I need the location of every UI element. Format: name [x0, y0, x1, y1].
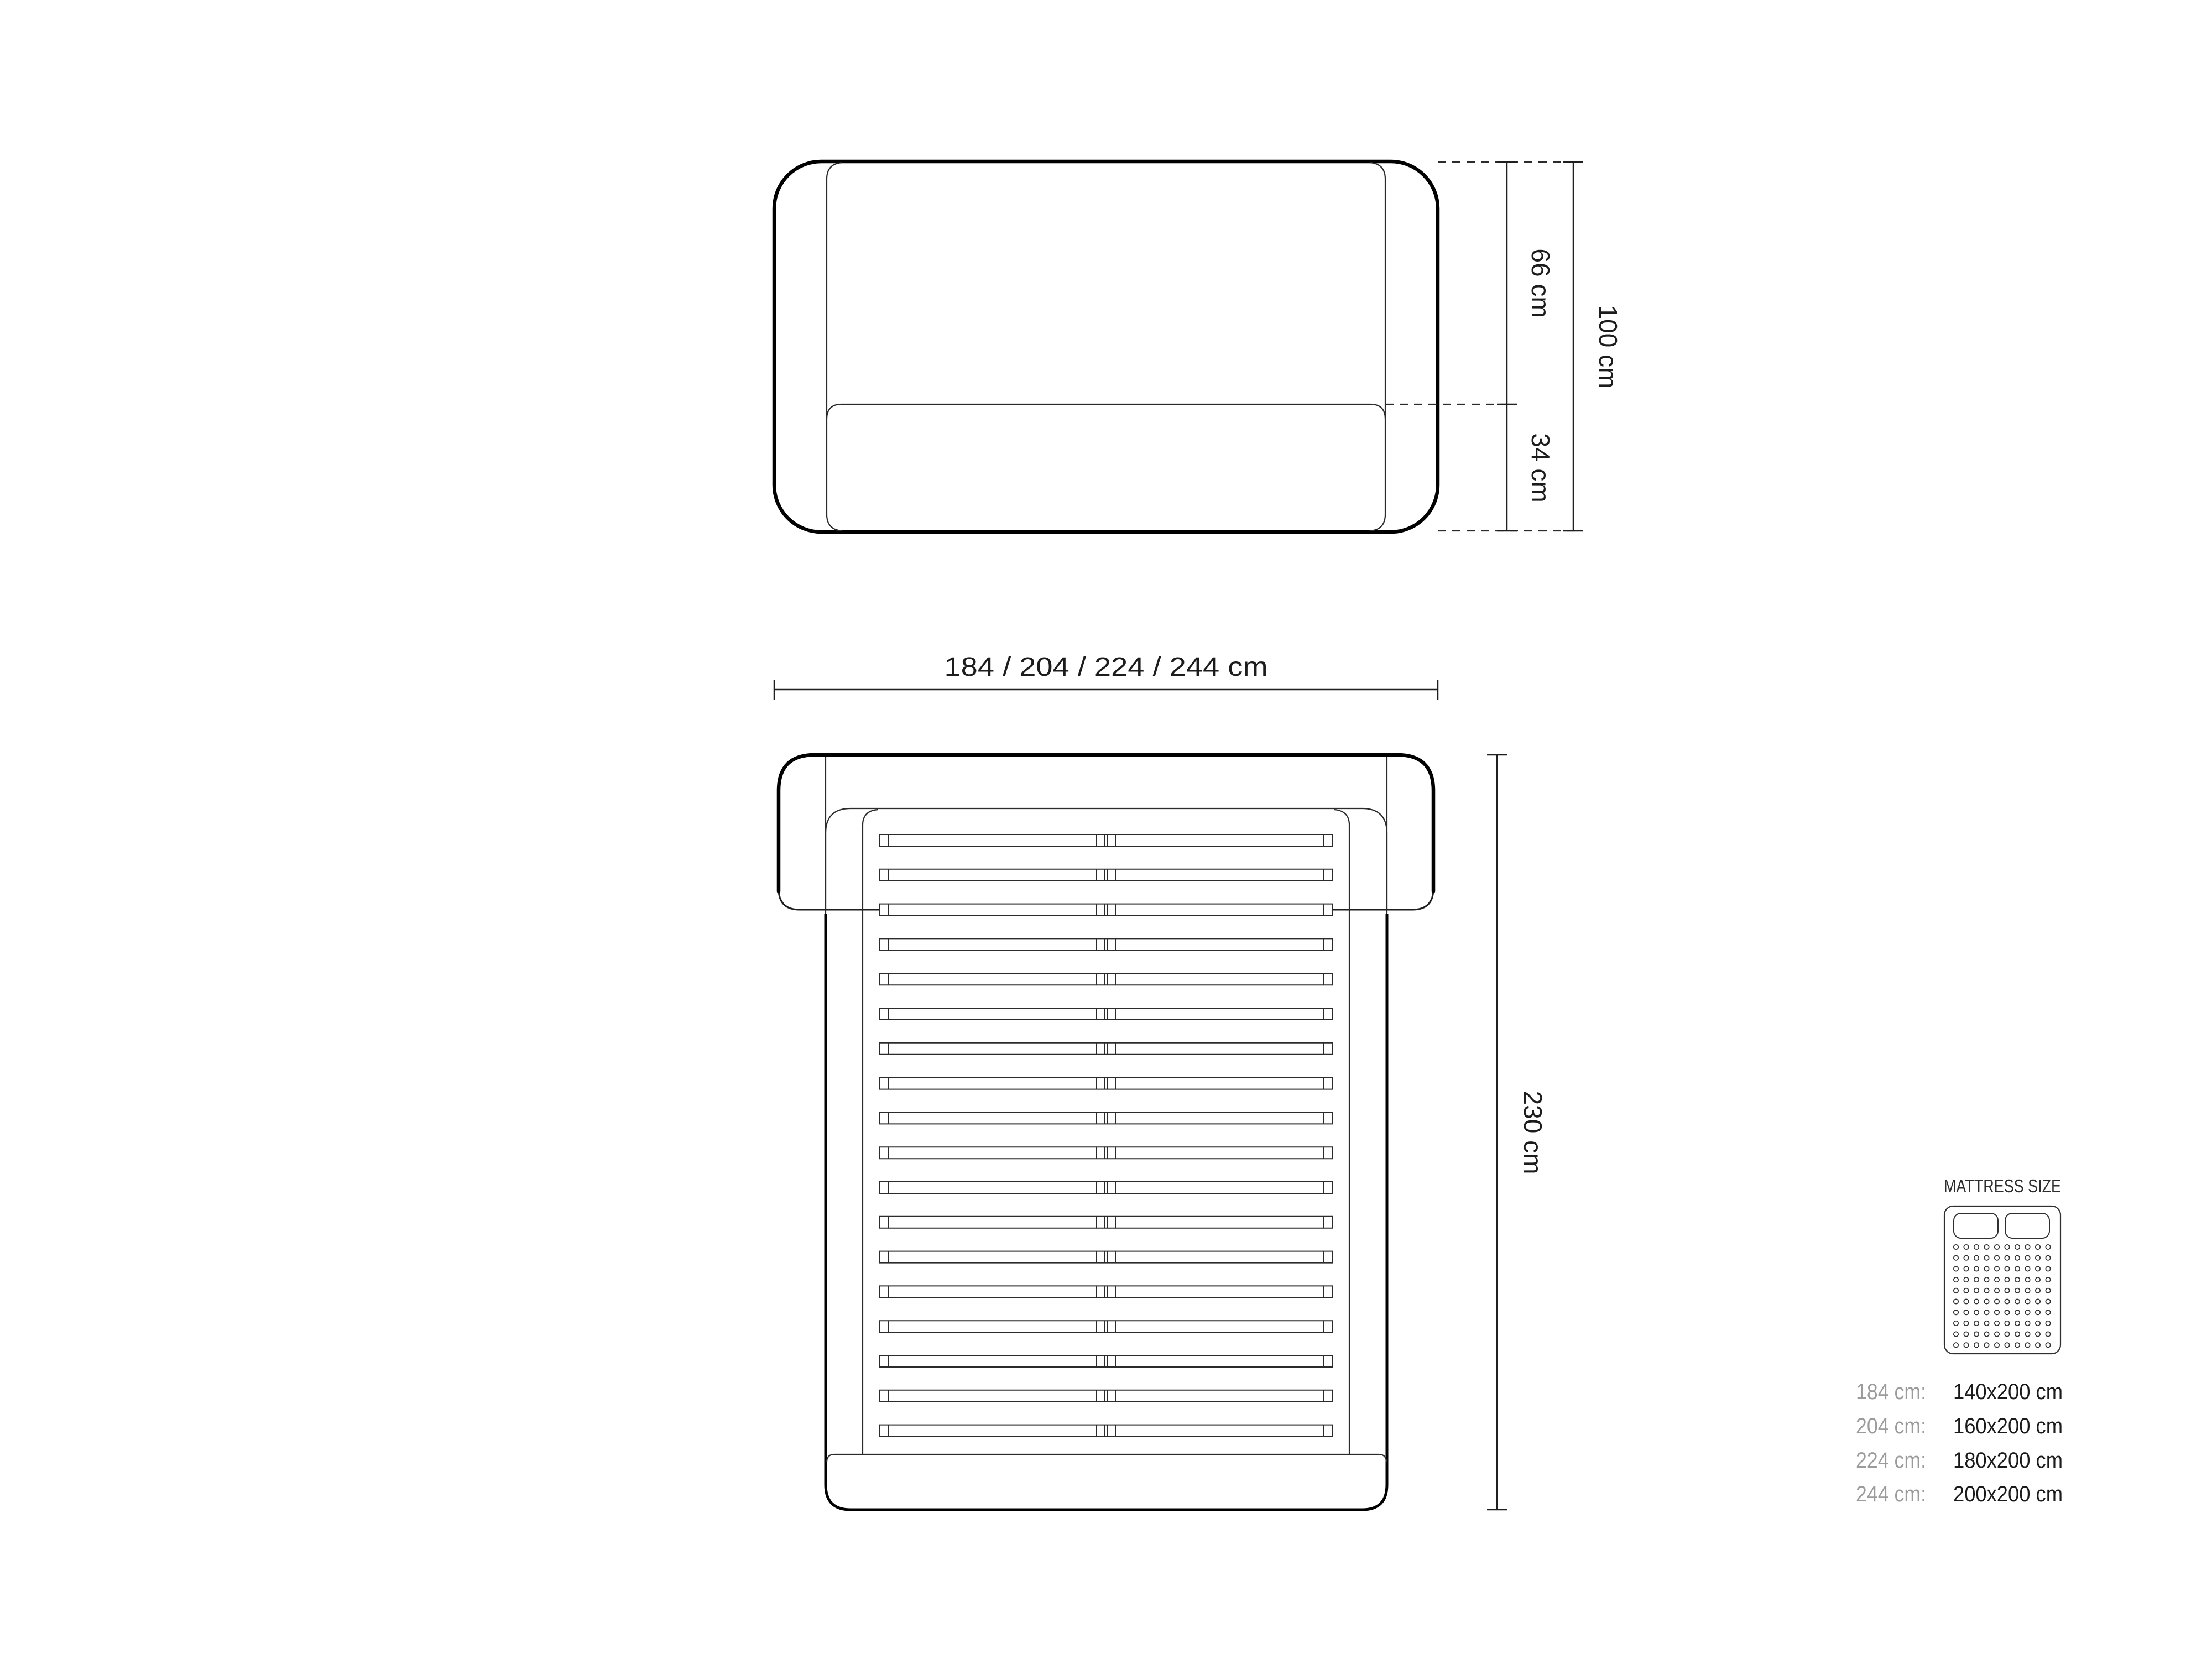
mattress-dot: [1984, 1332, 1989, 1336]
mattress-dot: [1995, 1288, 1999, 1293]
mattress-dot: [2005, 1266, 2009, 1271]
slat-row: [879, 1043, 1333, 1055]
slat-row: [879, 834, 1333, 846]
mattress-dot: [2005, 1332, 2009, 1336]
mattress-dot: [1974, 1332, 1979, 1336]
left-rail: [863, 810, 878, 1454]
mattress-dot: [2015, 1321, 2020, 1326]
mattress-dot: [1995, 1310, 1999, 1314]
slat-row: [879, 1286, 1333, 1297]
front-elevation-view: 66 cm 34 cm 100 cm: [774, 161, 1623, 532]
width-dimension: 184 / 204 / 224 / 244 cm: [774, 653, 1438, 700]
mattress-dot: [2025, 1245, 2030, 1249]
mattress-dot: [1954, 1332, 1958, 1336]
slat-row: [879, 1182, 1333, 1193]
mattress-dot: [1954, 1277, 1958, 1282]
mattress-dot: [1984, 1288, 1989, 1293]
mattress-dot: [1964, 1245, 1968, 1249]
slat-row: [879, 973, 1333, 985]
mattress-dot: [2036, 1332, 2040, 1336]
mattress-dot: [2015, 1256, 2020, 1260]
mattress-icon-body: [1944, 1206, 2060, 1354]
mattress-dot: [2015, 1266, 2020, 1271]
height-66-label: 66 cm: [1526, 248, 1555, 317]
mattress-dot: [1974, 1277, 1979, 1282]
mattress-dot: [2046, 1256, 2050, 1260]
mattress-dot: [2015, 1332, 2020, 1336]
mattress-dot: [1974, 1288, 1979, 1293]
mattress-dot: [2005, 1299, 2009, 1303]
mattress-dot: [1995, 1321, 1999, 1326]
mattress-dot: [2025, 1321, 2030, 1326]
mattress-dot: [2015, 1310, 2020, 1314]
width-options-label: 184 / 204 / 224 / 244 cm: [945, 653, 1268, 682]
mattress-dot: [2046, 1288, 2050, 1293]
mattress-dot: [1995, 1277, 1999, 1282]
mattress-dot: [1954, 1266, 1958, 1271]
mattress-dot: [2046, 1321, 2050, 1326]
slat-row: [879, 1425, 1333, 1437]
mattress-dot: [1964, 1256, 1968, 1260]
slat-row: [879, 1078, 1333, 1089]
mattress-dot: [2036, 1299, 2040, 1303]
mattress-dot: [1974, 1256, 1979, 1260]
slat-row: [879, 1147, 1333, 1159]
mattress-dot: [2025, 1299, 2030, 1303]
mattress-dot: [2005, 1256, 2009, 1260]
mattress-icon-dots-group: [1954, 1245, 2051, 1348]
mattress-dot: [1984, 1321, 1989, 1326]
mattress-dot: [1954, 1310, 1958, 1314]
slat-row: [879, 938, 1333, 950]
mattress-dot: [1954, 1343, 1958, 1347]
mattress-dot: [1954, 1245, 1958, 1249]
mattress-dot: [1964, 1277, 1968, 1282]
mattress-dot: [1995, 1299, 1999, 1303]
mattress-dot: [1974, 1266, 1979, 1271]
mattress-dot: [2046, 1245, 2050, 1249]
mattress-dot: [2036, 1277, 2040, 1282]
mattress-dot: [1974, 1343, 1979, 1347]
mattress-dot: [1954, 1256, 1958, 1260]
mattress-dot: [2036, 1245, 2040, 1249]
mattress-dot: [1984, 1245, 1989, 1249]
mattress-dot: [2015, 1299, 2020, 1303]
mattress-dot: [2025, 1266, 2030, 1271]
mattress-dot: [2046, 1266, 2050, 1271]
mattress-dot: [2036, 1256, 2040, 1260]
slat-row: [879, 1008, 1333, 1020]
mattress-dot: [2046, 1343, 2050, 1347]
mattress-size-title: MATTRESS SIZE: [1944, 1176, 2061, 1196]
size-row-frame: 204 cm:: [1856, 1414, 1926, 1438]
slat-row: [879, 904, 1333, 916]
mattress-dot: [2015, 1245, 2020, 1249]
top-down-view: 230 cm: [779, 755, 1547, 1510]
size-row-frame: 244 cm:: [1856, 1482, 1926, 1506]
mattress-icon-pillow-right: [2005, 1213, 2049, 1238]
mattress-icon-pillow-left: [1954, 1213, 1998, 1238]
mattress-dot: [2005, 1343, 2009, 1347]
mattress-dot: [2046, 1299, 2050, 1303]
mattress-dot: [2036, 1266, 2040, 1271]
mattress-dot: [1984, 1310, 1989, 1314]
mattress-dot: [2025, 1288, 2030, 1293]
size-row-frame: 224 cm:: [1856, 1448, 1926, 1473]
diagram-canvas: 66 cm 34 cm 100 cm 184 / 204 / 224 / 244…: [0, 0, 2212, 1659]
mattress-dot: [1964, 1343, 1968, 1347]
mattress-dot: [1984, 1277, 1989, 1282]
size-row-value: 200x200 cm: [1953, 1482, 2063, 1506]
mattress-dot: [2046, 1310, 2050, 1314]
slat-row: [879, 1321, 1333, 1332]
mattress-dot: [1974, 1310, 1979, 1314]
mattress-dot: [2005, 1321, 2009, 1326]
footboard-band: [827, 1454, 1386, 1462]
mattress-dot: [1995, 1256, 1999, 1260]
mattress-dot: [2025, 1332, 2030, 1336]
mattress-dot: [1964, 1266, 1968, 1271]
slat-row: [879, 1217, 1333, 1228]
mattress-dot: [1995, 1245, 1999, 1249]
mattress-dot: [1964, 1332, 1968, 1336]
mattress-dot: [1974, 1299, 1979, 1303]
mattress-dot: [2036, 1321, 2040, 1326]
mattress-dot: [2015, 1343, 2020, 1347]
mattress-dot: [2036, 1343, 2040, 1347]
mattress-dot: [1954, 1299, 1958, 1303]
mattress-dot: [2005, 1277, 2009, 1282]
mattress-dot: [2005, 1288, 2009, 1293]
mattress-dot: [2036, 1288, 2040, 1293]
mattress-size-list: 184 cm: 140x200 cm 204 cm: 160x200 cm 22…: [1856, 1380, 2063, 1506]
mattress-dot: [1974, 1321, 1979, 1326]
mattress-dot: [2005, 1245, 2009, 1249]
size-row-frame: 184 cm:: [1856, 1380, 1926, 1404]
length-230-label: 230 cm: [1519, 1091, 1547, 1175]
mattress-dot: [1984, 1299, 1989, 1303]
slat-row: [879, 1112, 1333, 1124]
height-34-label: 34 cm: [1526, 433, 1555, 502]
slats-group: [879, 834, 1333, 1437]
headboard-shape: [779, 755, 1433, 910]
mattress-dot: [2046, 1277, 2050, 1282]
slat-row: [879, 1251, 1333, 1263]
height-100-label: 100 cm: [1594, 305, 1623, 389]
mattress-icon: [1944, 1206, 2060, 1354]
size-row-value: 140x200 cm: [1953, 1380, 2063, 1404]
front-right-seam: [1370, 163, 1385, 531]
bed-dimensions-diagram: 66 cm 34 cm 100 cm 184 / 204 / 224 / 244…: [0, 0, 2212, 1659]
front-outer-frame: [774, 161, 1438, 532]
mattress-dot: [1984, 1266, 1989, 1271]
mattress-dot: [1995, 1266, 1999, 1271]
mattress-dot: [1974, 1245, 1979, 1249]
mattress-dot: [1984, 1256, 1989, 1260]
mattress-dot: [1964, 1321, 1968, 1326]
mattress-dot: [2015, 1288, 2020, 1293]
mattress-dot: [2025, 1343, 2030, 1347]
mattress-dot: [1984, 1343, 1989, 1347]
bed-frame-outline-thick: [826, 914, 1387, 1510]
mattress-size-panel: MATTRESS SIZE 184 cm: 140x200 cm 204 cm:…: [1856, 1176, 2063, 1506]
mattress-dot: [1964, 1299, 1968, 1303]
mattress-dot: [2025, 1277, 2030, 1282]
mattress-dot: [2005, 1310, 2009, 1314]
mattress-dot: [1954, 1321, 1958, 1326]
mattress-dot: [1954, 1288, 1958, 1293]
mattress-dot: [2036, 1310, 2040, 1314]
headboard-ear-edges: [826, 757, 1387, 909]
mattress-dot: [1964, 1288, 1968, 1293]
slat-row: [879, 1390, 1333, 1402]
front-left-seam: [827, 163, 842, 531]
mattress-dot: [1964, 1310, 1968, 1314]
slat-row: [879, 1355, 1333, 1367]
mattress-dot: [2025, 1310, 2030, 1314]
mattress-dot: [2025, 1256, 2030, 1260]
mattress-dot: [2015, 1277, 2020, 1282]
size-row-value: 180x200 cm: [1953, 1448, 2063, 1473]
mattress-dot: [1995, 1332, 1999, 1336]
front-base-band: [827, 404, 1385, 419]
right-rail: [1334, 810, 1349, 1454]
mattress-dot: [2046, 1332, 2050, 1336]
mattress-dot: [1995, 1343, 1999, 1347]
slat-row: [879, 869, 1333, 881]
size-row-value: 160x200 cm: [1953, 1414, 2063, 1438]
